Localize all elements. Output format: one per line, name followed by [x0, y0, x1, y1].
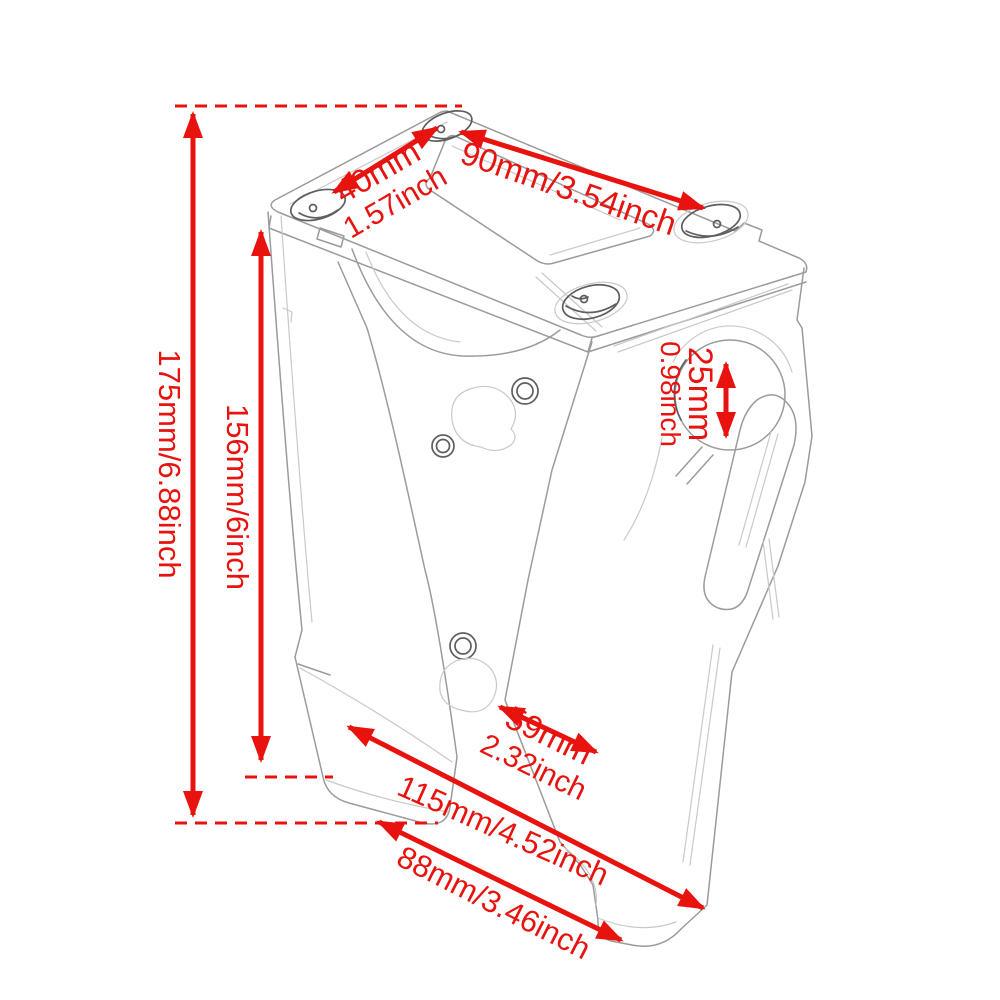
screw-lower-inner [455, 638, 471, 654]
blob-hole-lower [440, 658, 497, 711]
bolt-left-pin [310, 205, 317, 212]
under-plate-arch [352, 249, 560, 356]
blob-hole-upper [452, 386, 516, 450]
dimension-annotations: 175mm/6.88inch 156mm/6inch 40mm 1.57inch… [152, 106, 726, 966]
screw-mid-inner [437, 440, 450, 453]
block-edge-slot [763, 539, 779, 619]
screw-upper-inner [517, 383, 533, 399]
dim-total-height-label: 175mm/6.88inch [152, 349, 187, 578]
screw-lower [450, 633, 476, 659]
bolt-bottom [559, 279, 623, 325]
clamp-bean-slot [739, 432, 778, 547]
clamp-slot [676, 447, 713, 484]
gap-curve [624, 438, 662, 540]
bolt-bottom-shadow [566, 296, 616, 313]
screw-upper [512, 378, 538, 404]
bolt-left-shadow [299, 210, 338, 218]
dim-riser-height-label: 156mm/6inch [220, 404, 255, 590]
plate-slot-right [614, 284, 792, 352]
product-dimension-diagram: 175mm/6.88inch 156mm/6inch 40mm 1.57inch… [0, 0, 1000, 1000]
left-arm-inner-edge [281, 216, 312, 622]
arm-details [432, 378, 538, 712]
bolt-bottom-boss [550, 275, 631, 331]
diagram-canvas: 175mm/6.88inch 156mm/6inch 40mm 1.57inch… [0, 0, 1000, 1000]
bolt-top-pin [438, 126, 445, 133]
screw-mid [432, 435, 454, 457]
left-arm-foot-top [300, 668, 452, 762]
dim-handlebar-diameter-label-inch: 0.98inch [655, 341, 686, 447]
